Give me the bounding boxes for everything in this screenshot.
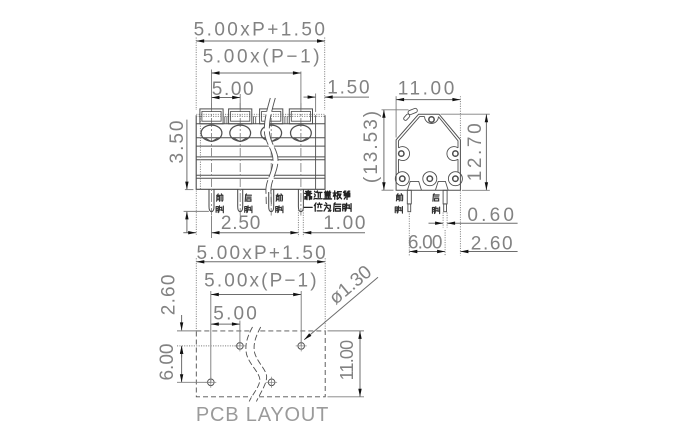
svg-text:5.00xP+1.50: 5.00xP+1.50: [196, 243, 327, 264]
svg-text:(13.53): (13.53): [361, 109, 382, 183]
svg-text:12.70: 12.70: [465, 121, 486, 182]
svg-text:2.50: 2.50: [221, 213, 261, 234]
svg-text:0.60: 0.60: [467, 205, 517, 226]
svg-text:5.00: 5.00: [212, 79, 255, 100]
svg-text:2.60: 2.60: [471, 233, 514, 254]
svg-text:6.00: 6.00: [157, 344, 178, 381]
svg-text:5.00xP+1.50: 5.00xP+1.50: [194, 20, 328, 41]
svg-text:11.00: 11.00: [398, 78, 457, 99]
svg-text:1.50: 1.50: [327, 78, 371, 99]
svg-text:5.00: 5.00: [213, 304, 259, 325]
svg-text:3.50: 3.50: [167, 119, 188, 164]
svg-text:6.00: 6.00: [408, 233, 442, 254]
svg-text:5.00x(P−1): 5.00x(P−1): [204, 271, 318, 292]
svg-text:11.00: 11.00: [337, 340, 357, 380]
svg-text:1.00: 1.00: [323, 213, 367, 234]
svg-text:PCB LAYOUT: PCB LAYOUT: [196, 404, 329, 426]
svg-text:5.00x(P−1): 5.00x(P−1): [203, 47, 322, 68]
svg-text:2.60: 2.60: [158, 273, 179, 315]
